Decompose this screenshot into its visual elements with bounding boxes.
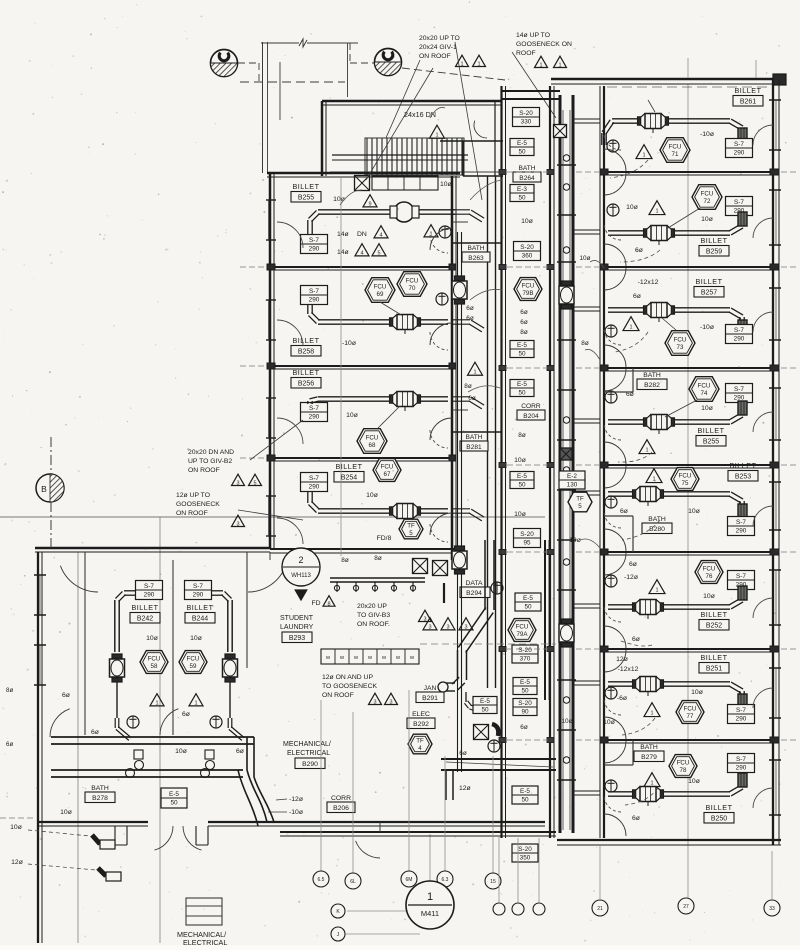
svg-text:B293: B293: [289, 635, 305, 642]
svg-text:B290: B290: [302, 761, 318, 768]
svg-text:10ø: 10ø: [346, 412, 358, 419]
svg-text:TF: TF: [407, 523, 415, 530]
svg-text:S-20: S-20: [519, 110, 533, 117]
svg-text:50: 50: [518, 482, 526, 489]
svg-text:FCU: FCU: [381, 464, 394, 471]
svg-text:BILLET: BILLET: [706, 803, 733, 812]
svg-text:BILLET: BILLET: [336, 462, 363, 471]
svg-text:10ø: 10ø: [626, 204, 638, 211]
svg-text:77: 77: [687, 713, 694, 720]
svg-text:10ø: 10ø: [688, 778, 700, 785]
svg-text:50: 50: [518, 351, 526, 358]
svg-text:TF: TF: [576, 496, 584, 503]
svg-text:10ø: 10ø: [440, 181, 452, 188]
svg-text:1: 1: [477, 62, 480, 68]
svg-text:10ø: 10ø: [366, 492, 378, 499]
svg-text:1: 1: [629, 325, 632, 331]
svg-text:B263: B263: [468, 255, 484, 262]
svg-text:3: 3: [236, 481, 239, 487]
svg-text:B204: B204: [523, 413, 539, 420]
svg-text:S-7: S-7: [309, 237, 319, 244]
svg-text:WH113: WH113: [291, 573, 311, 579]
svg-text:10ø: 10ø: [691, 689, 703, 696]
svg-text:FCU: FCU: [522, 283, 535, 290]
svg-text:20x24 GIV-1: 20x24 GIV-1: [419, 44, 457, 51]
svg-text:10ø: 10ø: [514, 457, 526, 464]
svg-text:2: 2: [298, 555, 303, 565]
svg-text:6ø: 6ø: [236, 748, 244, 755]
svg-text:BILLET: BILLET: [696, 277, 723, 286]
svg-text:3: 3: [446, 625, 449, 631]
svg-text:S-20: S-20: [520, 244, 534, 251]
svg-text:B256: B256: [298, 381, 314, 388]
svg-text:360: 360: [522, 253, 533, 260]
svg-text:ON ROOF: ON ROOF: [176, 510, 208, 517]
svg-text:B: B: [41, 484, 47, 494]
svg-text:-10ø: -10ø: [342, 340, 356, 347]
svg-text:15: 15: [490, 879, 496, 885]
svg-text:6ø: 6ø: [459, 750, 467, 757]
svg-text:E-5: E-5: [480, 698, 490, 705]
svg-text:50: 50: [518, 195, 526, 202]
svg-text:50: 50: [518, 149, 526, 156]
svg-text:BATH: BATH: [643, 372, 661, 379]
svg-text:S-7: S-7: [736, 573, 746, 580]
svg-text:B294: B294: [466, 590, 482, 597]
svg-text:BILLET: BILLET: [701, 236, 728, 245]
svg-text:8ø: 8ø: [374, 555, 382, 562]
svg-text:1: 1: [655, 209, 658, 215]
svg-text:5: 5: [578, 503, 582, 510]
svg-text:73: 73: [677, 344, 684, 351]
svg-text:-12x12: -12x12: [638, 279, 659, 286]
svg-text:1: 1: [194, 701, 197, 707]
svg-text:BILLET: BILLET: [293, 368, 320, 377]
svg-text:21: 21: [597, 906, 603, 912]
svg-text:ON ROOF: ON ROOF: [188, 467, 220, 474]
svg-text:68: 68: [369, 442, 376, 449]
svg-text:S-7: S-7: [309, 288, 319, 295]
svg-text:S-7: S-7: [734, 141, 744, 148]
svg-text:290: 290: [309, 246, 320, 253]
svg-text:BATH: BATH: [91, 785, 109, 792]
svg-text:ELECTRICAL: ELECTRICAL: [183, 938, 227, 945]
svg-text:TF: TF: [416, 738, 424, 745]
svg-text:3: 3: [428, 625, 431, 631]
svg-text:B279: B279: [641, 754, 657, 761]
svg-text:10ø: 10ø: [60, 809, 72, 816]
svg-text:FCU: FCU: [148, 656, 161, 663]
svg-text:E-3: E-3: [517, 186, 527, 193]
svg-text:10ø: 10ø: [190, 635, 202, 642]
svg-text:FD/8: FD/8: [377, 535, 392, 542]
svg-text:74: 74: [701, 390, 708, 397]
svg-text:10ø: 10ø: [561, 718, 572, 725]
svg-text:70: 70: [409, 285, 416, 292]
svg-text:10ø: 10ø: [521, 218, 533, 225]
svg-text:B258: B258: [298, 349, 314, 356]
svg-text:50: 50: [521, 688, 529, 695]
svg-text:B292: B292: [413, 721, 429, 728]
svg-text:290: 290: [144, 592, 155, 599]
svg-text:1: 1: [558, 63, 561, 69]
svg-text:8ø: 8ø: [464, 383, 472, 390]
svg-text:S-7: S-7: [734, 327, 744, 334]
svg-text:DN: DN: [357, 231, 367, 238]
svg-text:12ø UP TO: 12ø UP TO: [176, 492, 210, 499]
svg-text:10ø: 10ø: [175, 748, 187, 755]
svg-text:ON ROOF: ON ROOF: [419, 53, 451, 60]
svg-text:FCU: FCU: [677, 760, 690, 767]
svg-text:E-5: E-5: [523, 595, 533, 602]
svg-text:14ø UP TO: 14ø UP TO: [516, 32, 550, 39]
svg-text:10ø: 10ø: [514, 511, 526, 518]
svg-text:BILLET: BILLET: [698, 426, 725, 435]
svg-text:1: 1: [650, 711, 653, 717]
svg-text:1: 1: [645, 448, 648, 454]
svg-text:S-20: S-20: [518, 846, 532, 853]
svg-text:JAN: JAN: [424, 685, 437, 692]
svg-text:5: 5: [377, 251, 380, 257]
svg-text:S-20: S-20: [518, 700, 532, 707]
svg-text:BILLET: BILLET: [735, 86, 762, 95]
svg-text:MECHANICAL/: MECHANICAL/: [283, 741, 331, 748]
svg-text:S-7: S-7: [734, 199, 744, 206]
svg-text:6L: 6L: [350, 879, 356, 885]
svg-text:1: 1: [655, 588, 658, 594]
svg-text:DATA: DATA: [465, 580, 483, 587]
svg-text:B252: B252: [706, 623, 722, 630]
svg-text:FCU: FCU: [679, 473, 692, 480]
svg-text:CORR: CORR: [331, 795, 351, 802]
svg-text:1: 1: [642, 153, 645, 159]
svg-text:8ø: 8ø: [341, 557, 349, 564]
svg-text:B250: B250: [711, 816, 727, 823]
svg-text:330: 330: [521, 119, 532, 126]
svg-text:6ø: 6ø: [632, 636, 640, 643]
svg-text:130: 130: [567, 482, 578, 489]
svg-text:1: 1: [539, 63, 542, 69]
svg-text:69: 69: [377, 291, 384, 298]
svg-text:14ø: 14ø: [337, 231, 349, 238]
svg-text:50: 50: [170, 800, 178, 807]
svg-text:B278: B278: [92, 795, 108, 802]
svg-text:FCU: FCU: [674, 337, 687, 344]
svg-text:B251: B251: [706, 666, 722, 673]
svg-text:8ø: 8ø: [520, 329, 528, 336]
svg-text:6ø: 6ø: [620, 508, 628, 515]
svg-text:-12ø: -12ø: [624, 574, 638, 581]
svg-text:6ø: 6ø: [6, 741, 13, 748]
svg-text:3: 3: [236, 522, 239, 528]
svg-text:8ø: 8ø: [518, 432, 526, 439]
svg-text:ELEC: ELEC: [412, 711, 430, 718]
svg-text:290: 290: [309, 414, 320, 421]
svg-text:E-5: E-5: [169, 791, 179, 798]
svg-text:24x16 DN: 24x16 DN: [404, 110, 436, 119]
svg-text:6ø: 6ø: [91, 729, 99, 736]
svg-text:FCU: FCU: [187, 656, 200, 663]
svg-text:6ø: 6ø: [520, 319, 528, 326]
svg-text:BILLET: BILLET: [730, 461, 757, 470]
svg-text:290: 290: [736, 765, 747, 772]
svg-text:72: 72: [704, 198, 711, 205]
svg-text:76: 76: [706, 573, 713, 580]
svg-text:E-5: E-5: [517, 342, 527, 349]
svg-text:-10ø: -10ø: [700, 131, 714, 138]
svg-text:10ø: 10ø: [146, 635, 158, 642]
svg-text:90: 90: [521, 709, 529, 716]
svg-text:FCU: FCU: [703, 566, 716, 573]
svg-text:6ø: 6ø: [182, 711, 190, 718]
svg-text:1: 1: [155, 701, 158, 707]
svg-text:50: 50: [521, 797, 529, 804]
svg-text:GOOSENECK: GOOSENECK: [176, 501, 220, 508]
svg-text:10ø: 10ø: [579, 255, 590, 262]
svg-text:TO GIV-B3: TO GIV-B3: [357, 612, 390, 619]
svg-text:10ø: 10ø: [701, 216, 713, 223]
svg-text:B259: B259: [706, 249, 722, 256]
svg-text:FD: FD: [311, 600, 320, 607]
svg-text:-12ø: -12ø: [289, 796, 303, 803]
svg-text:1: 1: [650, 781, 653, 787]
svg-text:FCU: FCU: [698, 383, 711, 390]
svg-text:290: 290: [736, 716, 747, 723]
svg-text:58: 58: [151, 663, 158, 670]
svg-text:S-7: S-7: [144, 583, 154, 590]
svg-text:ON ROOF: ON ROOF: [322, 692, 354, 699]
svg-text:-12x12: -12x12: [618, 666, 639, 673]
svg-text:BILLET: BILLET: [293, 336, 320, 345]
svg-text:5: 5: [253, 481, 256, 487]
svg-text:78: 78: [680, 767, 687, 774]
svg-text:E-5: E-5: [520, 788, 530, 795]
svg-text:S-7: S-7: [193, 583, 203, 590]
svg-text:59: 59: [190, 663, 197, 670]
svg-text:BILLET: BILLET: [701, 610, 728, 619]
svg-text:50: 50: [518, 390, 526, 397]
svg-text:5: 5: [409, 530, 413, 537]
svg-text:BILLET: BILLET: [132, 603, 159, 612]
svg-text:LAUNDRY: LAUNDRY: [280, 624, 314, 631]
svg-text:B254: B254: [341, 475, 357, 482]
svg-text:10ø: 10ø: [703, 593, 715, 600]
svg-text:4: 4: [379, 233, 382, 239]
svg-text:3: 3: [373, 700, 376, 706]
svg-text:ELECTRICAL: ELECTRICAL: [287, 750, 330, 757]
svg-text:1: 1: [435, 133, 438, 139]
svg-text:290: 290: [193, 592, 204, 599]
svg-text:S-20: S-20: [520, 531, 534, 538]
svg-text:8: 8: [327, 602, 330, 608]
svg-text:-10ø: -10ø: [289, 809, 303, 816]
svg-text:S-7: S-7: [736, 707, 746, 714]
svg-text:20x20 UP: 20x20 UP: [357, 603, 387, 610]
svg-text:BILLET: BILLET: [187, 603, 214, 612]
svg-text:S-7: S-7: [736, 756, 746, 763]
svg-text:67: 67: [384, 471, 391, 478]
svg-text:27: 27: [683, 904, 689, 910]
svg-text:1: 1: [427, 891, 433, 903]
svg-text:FCU: FCU: [669, 144, 682, 151]
svg-text:6ø: 6ø: [520, 309, 528, 316]
svg-text:B281: B281: [466, 444, 482, 451]
svg-text:B244: B244: [192, 616, 208, 623]
svg-text:S-7: S-7: [309, 405, 319, 412]
svg-text:FCU: FCU: [684, 706, 697, 713]
svg-text:290: 290: [309, 297, 320, 304]
svg-text:12ø ON AND UP: 12ø ON AND UP: [322, 674, 373, 681]
svg-text:B206: B206: [333, 805, 349, 812]
svg-text:E-5: E-5: [517, 473, 527, 480]
svg-text:-10ø: -10ø: [700, 324, 714, 331]
svg-text:370: 370: [520, 656, 531, 663]
svg-text:B242: B242: [137, 616, 153, 623]
svg-text:6ø: 6ø: [629, 561, 637, 568]
svg-text:8ø: 8ø: [6, 687, 13, 694]
svg-text:-6ø: -6ø: [617, 695, 627, 702]
svg-text:95: 95: [523, 540, 531, 547]
svg-text:ROOF: ROOF: [516, 50, 536, 57]
svg-text:12ø: 12ø: [11, 859, 23, 866]
svg-text:10ø: 10ø: [10, 824, 22, 831]
svg-text:ON ROOF.: ON ROOF.: [357, 621, 390, 628]
svg-text:STUDENT: STUDENT: [280, 615, 314, 622]
svg-text:3: 3: [464, 625, 467, 631]
svg-text:6ø: 6ø: [520, 724, 528, 731]
svg-text:12ø: 12ø: [459, 785, 471, 792]
svg-text:E-2: E-2: [567, 473, 577, 480]
svg-text:FCU: FCU: [516, 624, 529, 631]
svg-text:4: 4: [418, 745, 422, 752]
svg-text:350: 350: [520, 855, 531, 862]
svg-text:B280: B280: [649, 526, 665, 533]
svg-text:290: 290: [734, 150, 745, 157]
svg-text:75: 75: [682, 480, 689, 487]
svg-text:290: 290: [734, 336, 745, 343]
svg-text:3: 3: [423, 617, 426, 623]
svg-text:BATH: BATH: [640, 744, 658, 751]
svg-text:20x20 DN AND: 20x20 DN AND: [188, 449, 234, 456]
svg-text:10ø: 10ø: [701, 405, 713, 412]
svg-text:1: 1: [473, 370, 476, 376]
svg-text:S-7: S-7: [736, 519, 746, 526]
svg-text:71: 71: [672, 151, 679, 158]
svg-text:4: 4: [360, 251, 363, 257]
svg-text:14ø: 14ø: [337, 249, 349, 256]
svg-text:290: 290: [736, 528, 747, 535]
svg-text:B282: B282: [644, 382, 660, 389]
svg-text:10ø: 10ø: [688, 508, 700, 515]
svg-text:79A: 79A: [516, 631, 528, 638]
svg-text:10ø: 10ø: [333, 196, 345, 203]
svg-text:B255: B255: [703, 439, 719, 446]
svg-text:33: 33: [769, 906, 775, 912]
svg-text:6ø: 6ø: [466, 305, 474, 312]
svg-text:3: 3: [389, 700, 392, 706]
svg-text:BILLET: BILLET: [293, 182, 320, 191]
svg-text:E-5: E-5: [517, 381, 527, 388]
svg-text:B264: B264: [519, 175, 535, 182]
svg-text:UP TO GIV-B2: UP TO GIV-B2: [188, 458, 232, 465]
svg-text:79B: 79B: [522, 290, 533, 297]
svg-text:S-20: S-20: [518, 647, 532, 654]
svg-text:50: 50: [481, 707, 489, 714]
svg-text:B253: B253: [735, 474, 751, 481]
svg-text:FCU: FCU: [701, 191, 714, 198]
svg-text:B291: B291: [422, 695, 438, 702]
svg-text:10ø: 10ø: [603, 719, 615, 726]
svg-text:E-5: E-5: [517, 140, 527, 147]
svg-text:1: 1: [460, 62, 463, 68]
svg-text:290: 290: [309, 484, 320, 491]
svg-text:CORR: CORR: [521, 403, 541, 410]
svg-text:9: 9: [368, 202, 371, 208]
svg-text:FCU: FCU: [366, 435, 379, 442]
svg-text:E-5: E-5: [520, 679, 530, 686]
svg-text:FCU: FCU: [374, 284, 387, 291]
svg-text:B255: B255: [298, 195, 314, 202]
svg-text:6.3: 6.3: [442, 877, 449, 883]
svg-text:20x20 UP TO: 20x20 UP TO: [419, 35, 460, 42]
svg-text:B261: B261: [740, 99, 756, 106]
svg-text:S-7: S-7: [734, 386, 744, 393]
svg-text:M411: M411: [421, 909, 439, 918]
svg-text:BATH: BATH: [465, 434, 482, 441]
svg-text:6M: 6M: [406, 877, 413, 883]
svg-text:6ø: 6ø: [633, 293, 641, 300]
svg-text:GOOSENECK ON: GOOSENECK ON: [516, 41, 572, 48]
svg-text:8ø: 8ø: [581, 340, 589, 347]
svg-text:BATH: BATH: [518, 165, 535, 172]
svg-text:FCU: FCU: [406, 278, 419, 285]
svg-text:BATH: BATH: [467, 245, 484, 252]
svg-text:50: 50: [524, 604, 532, 611]
svg-text:6ø: 6ø: [632, 815, 640, 822]
svg-text:6ø: 6ø: [62, 692, 70, 699]
svg-text:BILLET: BILLET: [701, 653, 728, 662]
svg-text:BATH: BATH: [648, 516, 666, 523]
svg-text:6.5: 6.5: [318, 877, 325, 883]
svg-text:B257: B257: [701, 290, 717, 297]
